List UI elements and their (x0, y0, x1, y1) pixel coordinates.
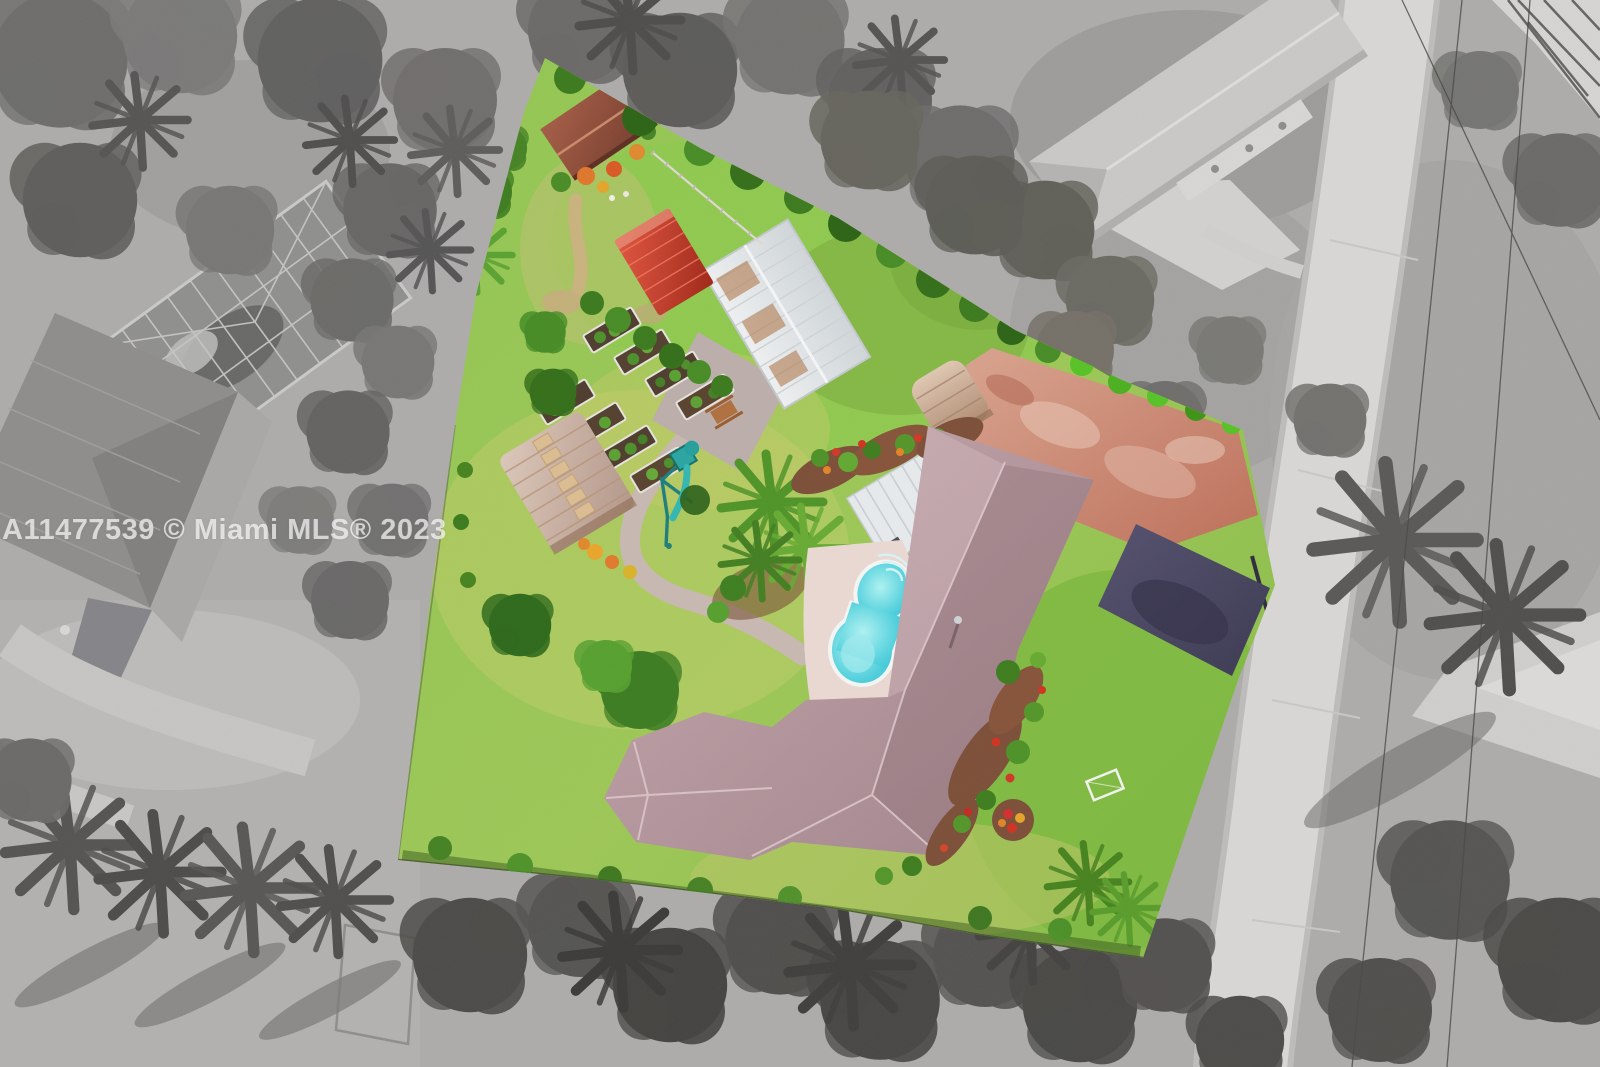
aerial-photo-canvas (0, 0, 1600, 1067)
aerial-photo: A11477539 © Miami MLS® 2023 (0, 0, 1600, 1067)
photo-grain-overlay (0, 0, 1600, 1067)
